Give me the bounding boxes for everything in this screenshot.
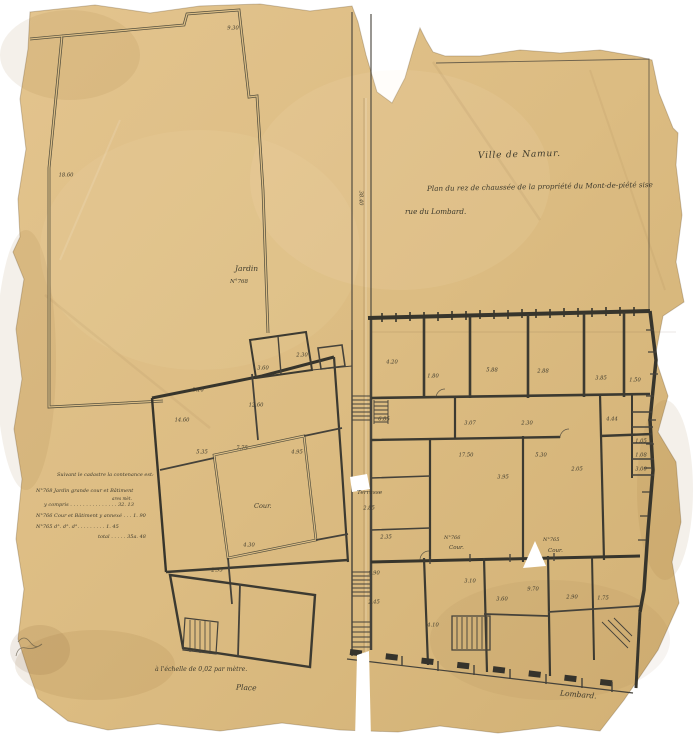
dimension-label: 2.05 — [571, 467, 583, 472]
dimension-label: 3.85 — [595, 376, 607, 381]
dimension-label: 2.35 — [380, 535, 392, 540]
dimension-label: 1.50 — [629, 378, 641, 383]
dimension-label: 6.85 — [378, 417, 390, 422]
dimension-label: 1.90 — [368, 571, 380, 576]
dimension-label: 3.10 — [192, 388, 204, 393]
dimension-label: 3.60 — [496, 597, 508, 602]
dimension-label: 4.20 — [386, 360, 398, 365]
dimension-label: 2.88 — [537, 369, 549, 374]
dimension-label: 7.75 — [236, 446, 248, 451]
scanned-plan-document: Ville de Namur. Plan du rez de chaussée … — [0, 0, 700, 739]
dimension-label: 1.08 — [635, 453, 647, 458]
dimension-label: 38.40 — [357, 191, 362, 206]
dimension-label: 9.30 — [227, 26, 239, 31]
dimension-label: 5.35 — [196, 450, 208, 455]
dimension-label: 3.60 — [257, 366, 269, 371]
dimension-label: 4.95 — [291, 450, 303, 455]
dimension-label: 1.75 — [597, 596, 609, 601]
dimension-label: 3.95 — [497, 475, 509, 480]
dimension-label: 2.95 — [211, 568, 223, 573]
dimension-label: 4.10 — [427, 623, 439, 628]
dimension-label: 4.30 — [243, 543, 255, 548]
dimension-label: 14.60 — [175, 418, 190, 423]
dimension-label: 1.05 — [635, 439, 647, 444]
dimension-label: 3.07 — [464, 421, 476, 426]
dimension-label: 2.30 — [296, 353, 308, 358]
dimension-label: 17.50 — [459, 453, 474, 458]
dimension-label: 2.30 — [521, 421, 533, 426]
dimension-label: 5.88 — [486, 368, 498, 373]
text-layer: Ville de Namur. Plan du rez de chaussée … — [0, 0, 700, 739]
dimension-label: 4.44 — [606, 417, 618, 422]
dimension-label: 3.00 — [635, 467, 647, 472]
dimension-layer: 9.3018.6038.404.201.805.882.883.851.503.… — [0, 0, 700, 739]
dimension-label: 18.60 — [59, 173, 74, 178]
dimension-label: 1.80 — [427, 374, 439, 379]
dimension-label: 2.45 — [368, 600, 380, 605]
dimension-label: 5.30 — [535, 453, 547, 458]
dimension-label: 3.10 — [464, 579, 476, 584]
dimension-label: 12.60 — [249, 403, 264, 408]
dimension-label: 2.90 — [566, 595, 578, 600]
dimension-label: 9.70 — [527, 587, 539, 592]
dimension-label: 2.85 — [363, 506, 375, 511]
